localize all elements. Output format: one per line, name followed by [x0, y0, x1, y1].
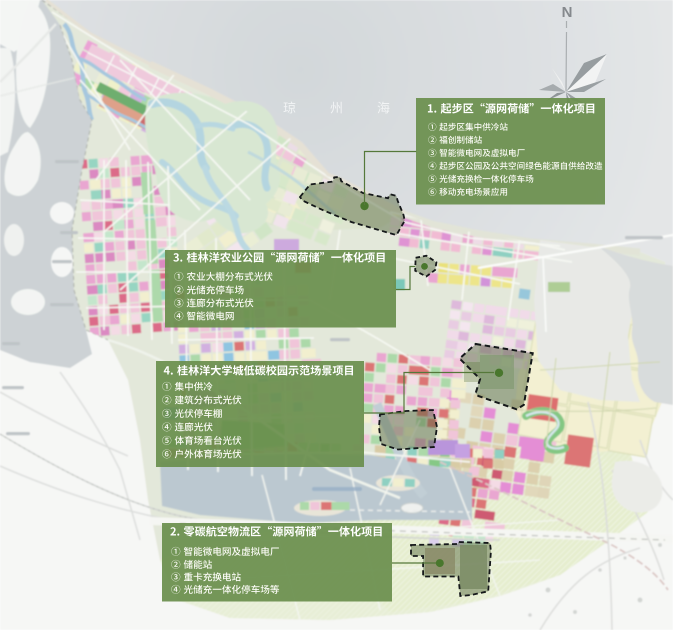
- svg-text:N: N: [562, 4, 573, 21]
